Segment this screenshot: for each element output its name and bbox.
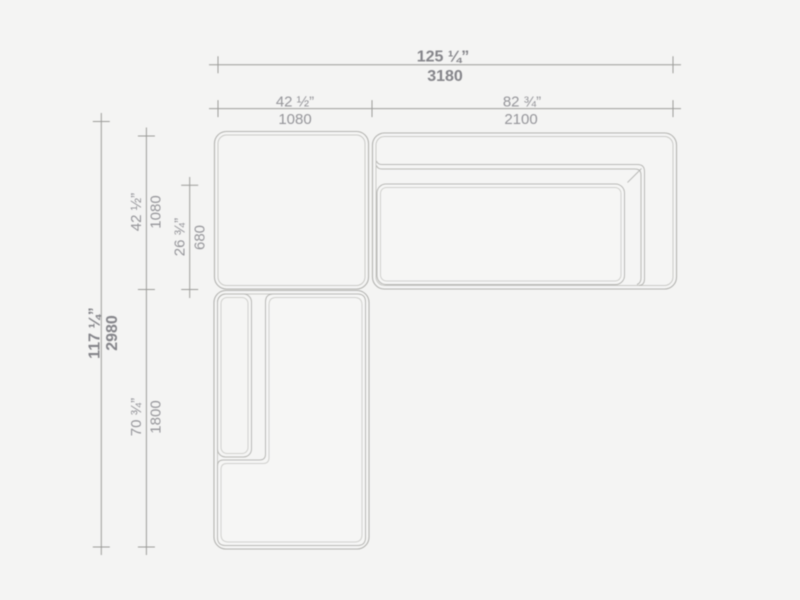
svg-text:2100: 2100 bbox=[504, 111, 537, 128]
svg-text:82 ¾”: 82 ¾” bbox=[503, 94, 541, 111]
svg-text:3180: 3180 bbox=[427, 68, 463, 85]
svg-text:1080: 1080 bbox=[278, 111, 311, 128]
svg-text:1080: 1080 bbox=[148, 195, 165, 228]
svg-text:680: 680 bbox=[192, 225, 209, 250]
svg-text:42 ½”: 42 ½” bbox=[128, 193, 145, 231]
svg-text:1800: 1800 bbox=[148, 400, 165, 433]
svg-text:26 ¾”: 26 ¾” bbox=[172, 218, 189, 256]
svg-text:117 ¼”: 117 ¼” bbox=[87, 307, 104, 359]
svg-text:70 ¾”: 70 ¾” bbox=[128, 398, 145, 436]
svg-text:42 ½”: 42 ½” bbox=[276, 94, 314, 111]
svg-text:2980: 2980 bbox=[104, 315, 121, 351]
svg-text:125 ¼”: 125 ¼” bbox=[417, 49, 469, 66]
